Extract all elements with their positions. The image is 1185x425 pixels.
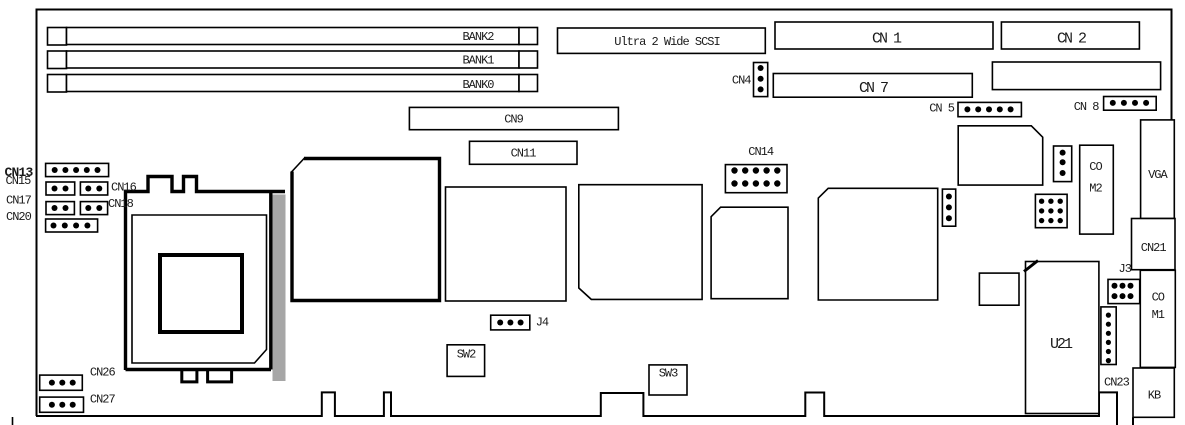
svg-text:J4: J4 (536, 316, 549, 330)
svg-text:VGA: VGA (1148, 168, 1168, 182)
svg-text:M1: M1 (1152, 308, 1165, 322)
svg-text:BANK1: BANK1 (462, 54, 494, 68)
svg-text:CN 7: CN 7 (859, 80, 888, 97)
svg-text:KB: KB (1148, 389, 1161, 403)
svg-text:CN14: CN14 (748, 145, 774, 159)
svg-text:CN13: CN13 (5, 165, 34, 180)
svg-text:CN 2: CN 2 (1057, 31, 1086, 48)
svg-text:M2: M2 (1089, 181, 1102, 195)
svg-text:SW3: SW3 (659, 367, 678, 381)
svg-text:CO: CO (1152, 291, 1165, 305)
svg-text:SW2: SW2 (457, 348, 476, 362)
svg-text:J3: J3 (1119, 262, 1132, 276)
svg-text:CN17: CN17 (6, 194, 32, 208)
svg-text:CN 5: CN 5 (929, 101, 955, 115)
svg-text:CN27: CN27 (90, 392, 116, 406)
svg-text:CN9: CN9 (504, 113, 523, 127)
svg-text:BANK2: BANK2 (462, 30, 494, 44)
svg-text:CN18: CN18 (108, 197, 134, 211)
svg-text:CN26: CN26 (90, 365, 116, 379)
svg-text:CN16: CN16 (111, 181, 137, 195)
svg-text:Ultra 2 Wide SCSI: Ultra 2 Wide SCSI (614, 35, 719, 49)
svg-text:U21: U21 (1050, 336, 1073, 353)
svg-text:CO: CO (1089, 160, 1102, 174)
svg-text:CN11: CN11 (511, 147, 537, 161)
svg-text:CN 8: CN 8 (1074, 100, 1100, 114)
svg-text:CN21: CN21 (1141, 241, 1167, 255)
svg-text:CN 1: CN 1 (872, 31, 902, 48)
svg-text:CN23: CN23 (1104, 375, 1130, 389)
svg-text:CN20: CN20 (6, 210, 32, 224)
svg-text:CN4: CN4 (732, 74, 751, 88)
svg-text:BANK0: BANK0 (462, 78, 494, 92)
